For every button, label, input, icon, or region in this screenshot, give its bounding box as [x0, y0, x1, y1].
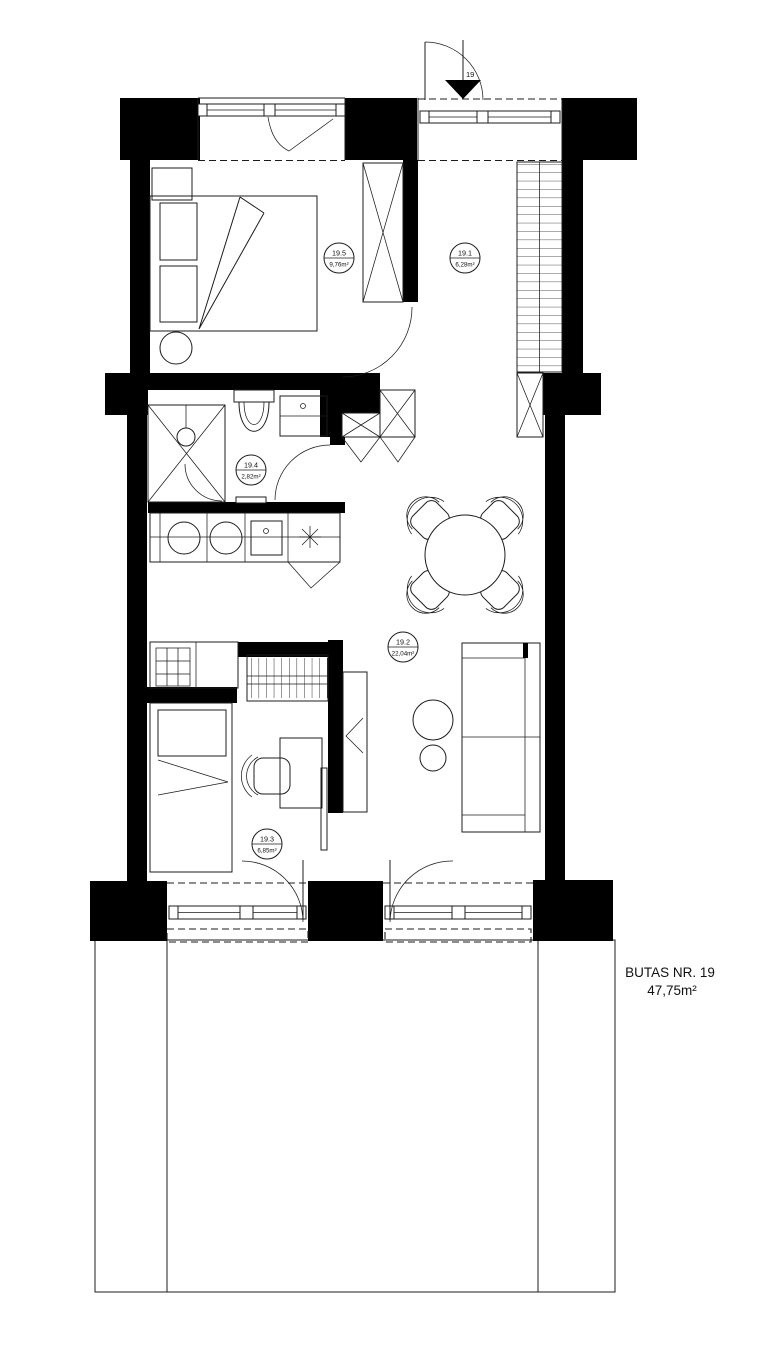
- coffee-table: [413, 700, 453, 740]
- side-table: [420, 745, 446, 771]
- bathroom-threshold: [236, 497, 266, 503]
- bedroom: [150, 163, 412, 377]
- wall-bath-kitchen-divider: [148, 502, 345, 513]
- hall-closet: [517, 162, 562, 372]
- title-block: BUTAS NR. 19 47,75m²: [625, 965, 715, 998]
- kitchen: [150, 513, 340, 701]
- pillow: [160, 266, 197, 322]
- svg-text:19.5: 19.5: [332, 249, 346, 258]
- svg-text:19.3: 19.3: [260, 835, 274, 844]
- bedroom-door-swing: [343, 307, 412, 377]
- tv-bench: [343, 672, 367, 812]
- entrance-arrow-icon: [445, 80, 481, 99]
- entrance: 19: [418, 40, 562, 161]
- wall-bedroom-right: [403, 160, 418, 302]
- bathroom: [148, 390, 330, 503]
- dining-table: [425, 515, 505, 595]
- wall-right-hall: [562, 160, 583, 373]
- room-label-19-4: 19.4 2,82m²: [236, 455, 266, 485]
- room-label-19-3: 19.3 6,85m²: [252, 829, 282, 859]
- room-label-19-1: 19.1 6,28m²: [450, 243, 480, 273]
- wall-bedroom-bath-divider: [148, 373, 380, 390]
- tv-icon: [346, 718, 363, 753]
- floor-plan-page: 19: [0, 0, 759, 1345]
- floor-plan: 19: [0, 0, 759, 1345]
- wall-room3-living-divider: [328, 640, 343, 813]
- sink: [251, 521, 282, 555]
- single-bed: [150, 703, 232, 872]
- svg-text:6,28m²: 6,28m²: [455, 262, 474, 269]
- stool: [160, 332, 192, 364]
- svg-text:19.1: 19.1: [458, 249, 472, 258]
- hob-icon: [299, 526, 321, 548]
- toilet: [234, 390, 274, 431]
- svg-text:2,82m²: 2,82m²: [241, 474, 260, 481]
- svg-text:19.4: 19.4: [244, 461, 258, 470]
- wall-pier-top-right: [562, 98, 637, 160]
- apartment-area: 47,75m²: [647, 983, 697, 998]
- svg-text:9,76m²: 9,76m²: [329, 262, 348, 269]
- balcony: [95, 940, 615, 1292]
- bedroom-window: [198, 98, 345, 161]
- wall-pier-right-mid: [543, 373, 601, 415]
- balcony-door-right: [383, 860, 533, 942]
- wall-bath-corner: [320, 390, 380, 413]
- wardrobe: [363, 163, 403, 302]
- wall-above-room3: [130, 687, 237, 703]
- wall-pier-top-mid: [345, 98, 417, 160]
- shower: [148, 405, 225, 502]
- wall-pier-top-left: [120, 98, 200, 160]
- window-casement-swing: [268, 117, 333, 151]
- living-room: [343, 643, 540, 832]
- sofa: [462, 643, 540, 832]
- svg-text:6,85m²: 6,85m²: [257, 848, 276, 855]
- wall-pier-bottom-left: [90, 881, 167, 941]
- bathroom-door-swing: [275, 445, 330, 500]
- shelf-unit: [150, 642, 238, 688]
- svg-text:22,04m²: 22,04m²: [392, 651, 415, 658]
- apartment-title: BUTAS NR. 19: [625, 965, 715, 980]
- room-label-19-5: 19.5 9,76m²: [324, 243, 354, 273]
- appliance: [210, 522, 242, 554]
- small-room: [150, 703, 327, 872]
- svg-text:19.2: 19.2: [396, 638, 410, 647]
- washing-machine: [168, 522, 200, 554]
- wall-right-lower: [545, 415, 565, 882]
- pillow: [160, 203, 197, 260]
- washbasin: [280, 396, 327, 436]
- wall-pier-bottom-right: [533, 880, 613, 941]
- blanket-fold: [199, 197, 264, 329]
- nightstand: [152, 168, 192, 200]
- wall-pier-bottom-mid: [308, 881, 383, 941]
- corner-cabinet-door: [288, 562, 340, 588]
- hall-closet-end-cabinet: [517, 373, 543, 437]
- desk-chair: [241, 755, 290, 797]
- room-label-19-2: 19.2 22,04m²: [388, 632, 418, 662]
- wall-left-lower: [127, 390, 147, 882]
- desk: [280, 738, 322, 808]
- entrance-number: 19: [466, 70, 474, 79]
- radiator: [247, 655, 328, 701]
- wall-left-upper: [130, 160, 150, 378]
- kitchen-counter: [150, 513, 340, 562]
- dining-set: [396, 486, 534, 624]
